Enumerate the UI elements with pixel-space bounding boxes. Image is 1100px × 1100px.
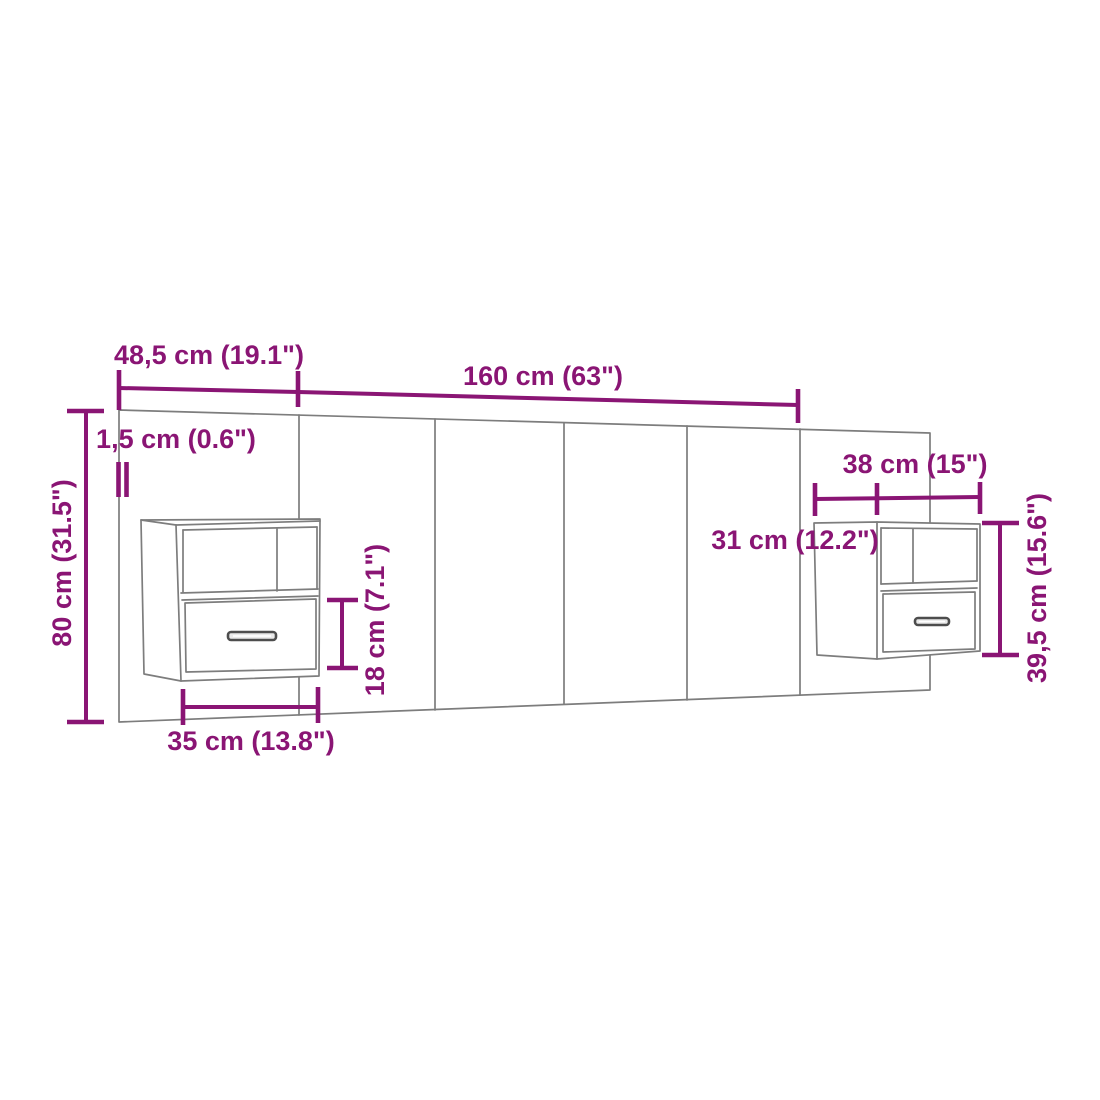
left-cabinet bbox=[141, 519, 320, 681]
dim-label-right-cabinet-width: 38 cm (15") bbox=[843, 449, 988, 479]
dim-label-headboard-center-width: 160 cm (63") bbox=[463, 361, 623, 391]
dim-label-cabinet-depth: 31 cm (12.2") bbox=[711, 525, 878, 555]
headboard-dimension-diagram: 48,5 cm (19.1") 160 cm (63") 80 cm (31.5… bbox=[0, 0, 1100, 1100]
dim-headboard-height: 80 cm (31.5") bbox=[47, 411, 104, 722]
dim-label-headboard-side-width: 48,5 cm (19.1") bbox=[114, 340, 304, 370]
dim-headboard-center-width: 160 cm (63") bbox=[298, 361, 798, 423]
dim-label-left-cabinet-width: 35 cm (13.8") bbox=[167, 726, 334, 756]
dimension-diagram-canvas: 48,5 cm (19.1") 160 cm (63") 80 cm (31.5… bbox=[0, 0, 1100, 1100]
dim-label-headboard-height: 80 cm (31.5") bbox=[47, 479, 77, 646]
dim-cabinet-depth: 31 cm (12.2") bbox=[711, 525, 878, 555]
dim-headboard-side-width: 48,5 cm (19.1") bbox=[114, 340, 304, 410]
dim-label-right-cabinet-height: 39,5 cm (15.6") bbox=[1022, 493, 1052, 683]
dim-label-panel-thickness: 1,5 cm (0.6") bbox=[96, 424, 256, 454]
dim-label-drawer-height: 18 cm (7.1") bbox=[360, 544, 390, 696]
dim-right-cabinet-height: 39,5 cm (15.6") bbox=[982, 493, 1052, 683]
